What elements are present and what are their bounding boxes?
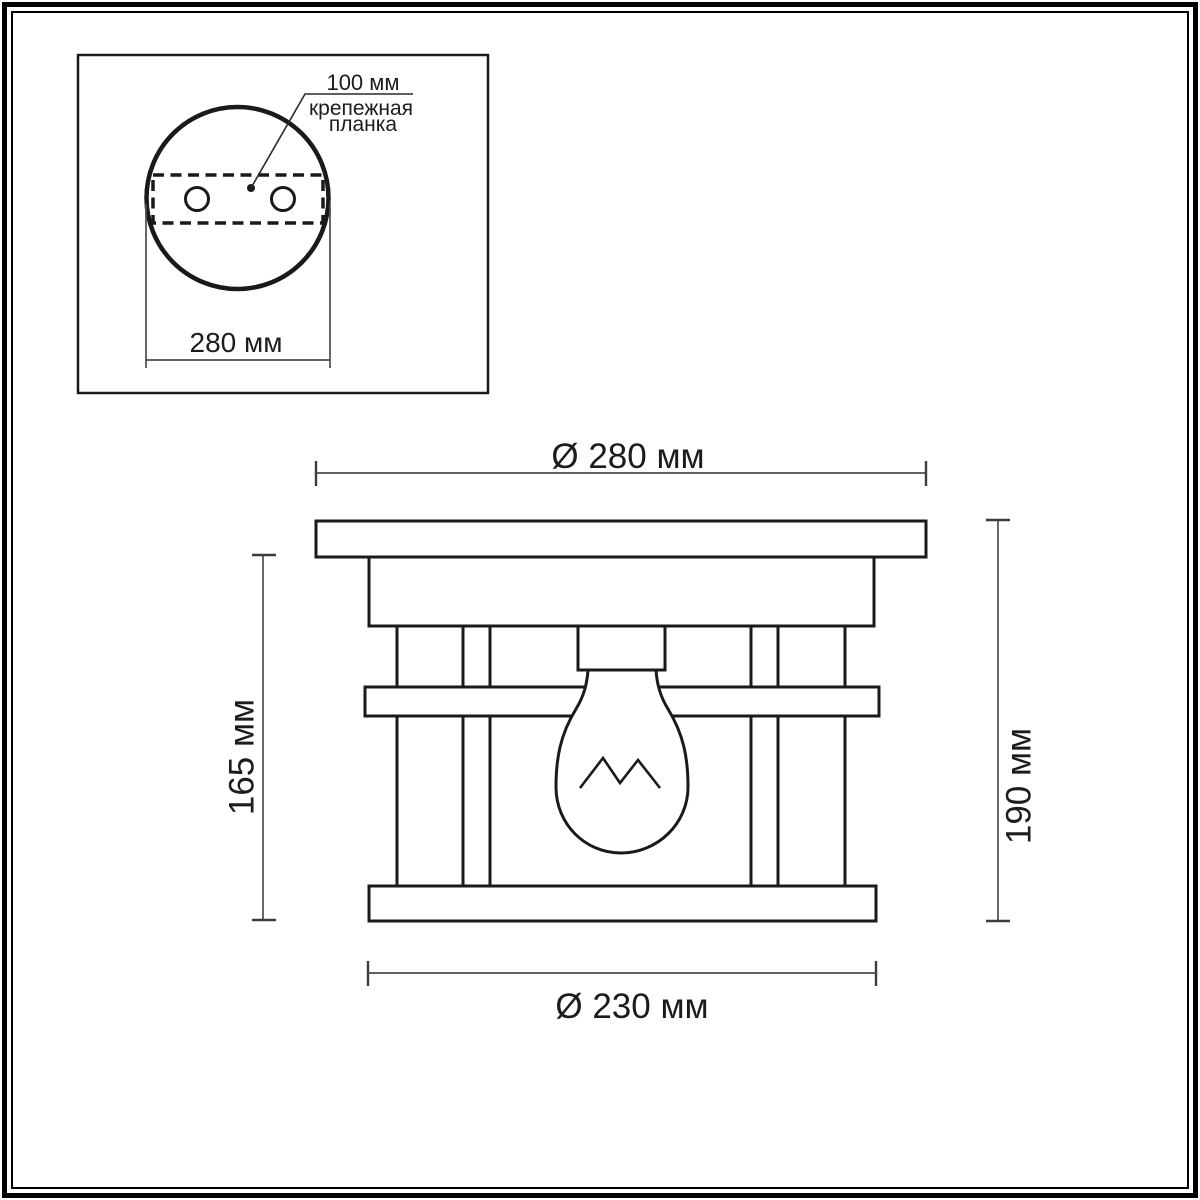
top-view-inset: 100 мм крепежная планка 280 мм bbox=[78, 55, 488, 393]
fixture-body bbox=[369, 557, 874, 626]
canopy-circle bbox=[147, 107, 329, 289]
left-height-label: 165 мм bbox=[222, 699, 261, 815]
lamp-socket bbox=[578, 626, 665, 670]
inset-diameter-label: 280 мм bbox=[190, 327, 283, 358]
hole-spacing-label: 100 мм bbox=[326, 70, 399, 95]
side-view: Ø 280 мм Ø 230 мм 165 мм 190 мм bbox=[222, 437, 1038, 1026]
right-height-label: 190 мм bbox=[999, 728, 1038, 844]
technical-drawing-page: 100 мм крепежная планка 280 мм Ø 280 мм … bbox=[0, 0, 1200, 1200]
bottom-diameter-label: Ø 230 мм bbox=[555, 987, 708, 1026]
top-diameter-label: Ø 280 мм bbox=[551, 437, 704, 476]
ceiling-canopy bbox=[316, 521, 926, 557]
mounting-plate-label-line2: планка bbox=[329, 113, 398, 136]
bottom-band bbox=[369, 886, 876, 921]
lamp-dimension-diagram: 100 мм крепежная планка 280 мм Ø 280 мм … bbox=[0, 0, 1200, 1200]
